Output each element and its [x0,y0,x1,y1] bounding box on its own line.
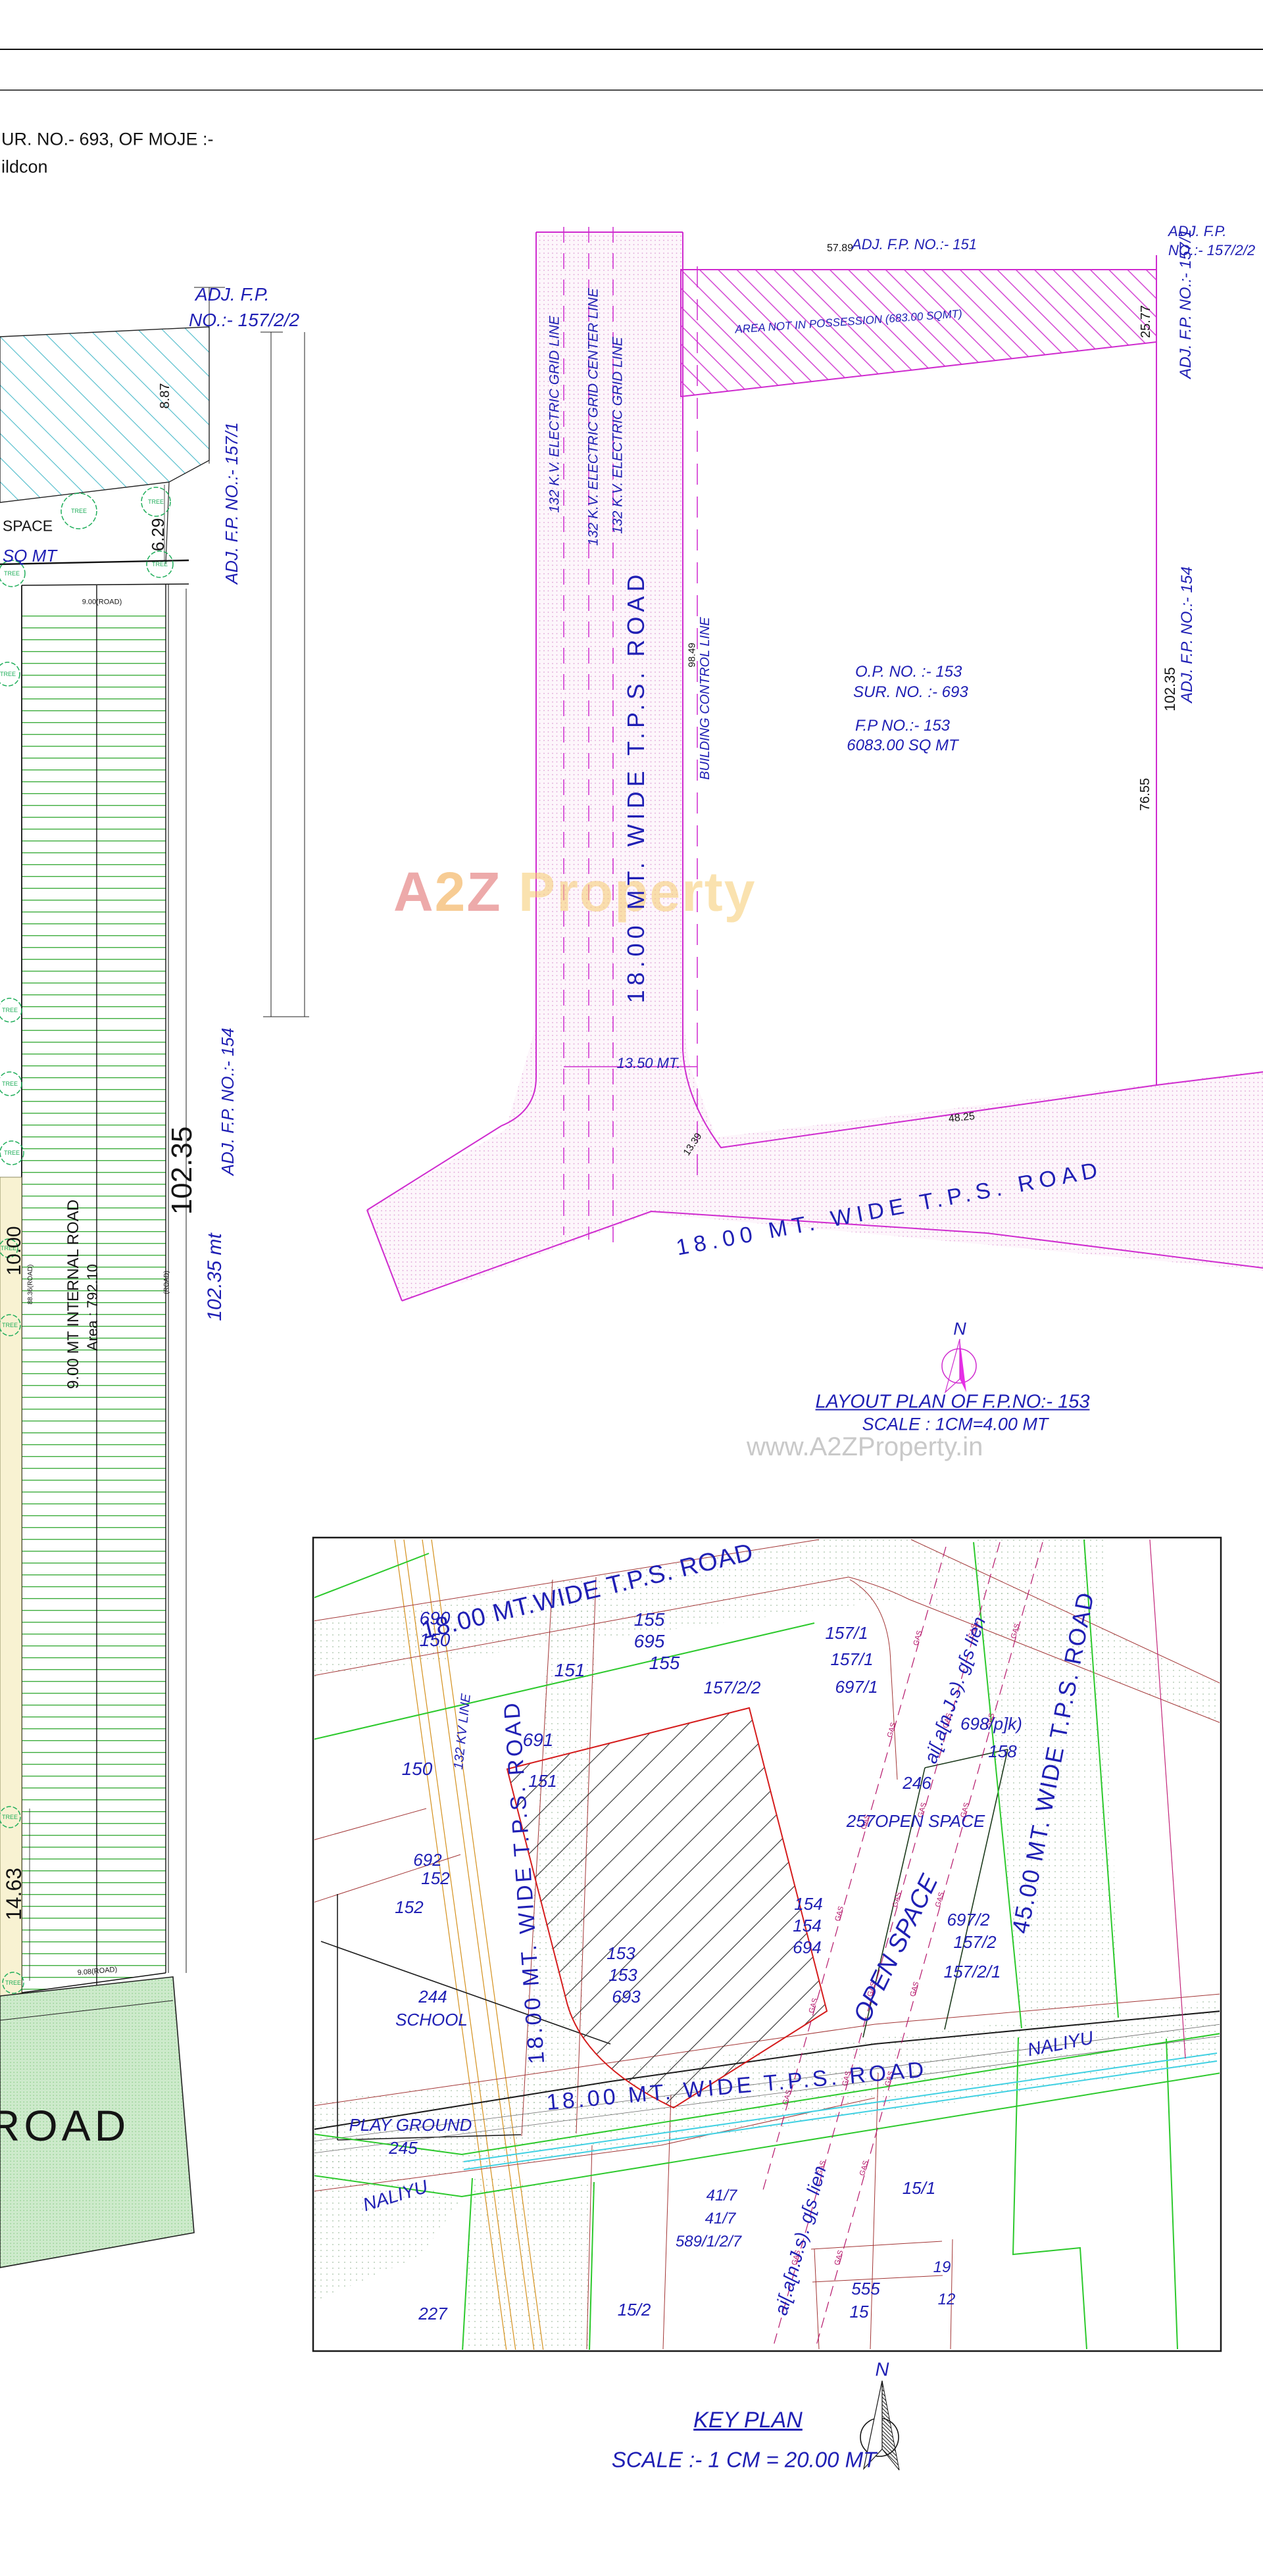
plan-label: Area : 792.10 [86,1264,100,1351]
plan-label: 697/2 [947,1911,989,1928]
plan-label: LAYOUT PLAN OF F.P.NO:- 153 [816,1393,1090,1412]
main-plan-road [366,227,1263,1301]
a2z-watermark: A2Z Property [393,860,756,924]
plan-drawing: GASGASGASGASGASGASGASGASGASGASGASGASGASG… [0,0,1263,2576]
watermark-letter-z: Z [466,861,501,923]
plan-label: 152 [421,1870,449,1887]
tree-label: TREE [4,570,20,577]
plan-label: 155 [649,1654,680,1672]
tree-label: TREE [152,561,168,568]
plan-label: ADJ. F.P. NO.:- 154 [1179,566,1195,702]
plan-label: 41/7 [705,2211,736,2227]
tree-label: TREE [2,1814,18,1820]
plan-label: 151 [528,1772,557,1789]
tree-label: TREE [2,1007,18,1013]
plan-label: SPACE [3,519,53,534]
plan-label: N [953,1321,966,1338]
plan-label: 153 [608,1966,637,1983]
plan-label: (ROAD) [164,1271,170,1294]
plan-label: 15/1 [903,2179,936,2197]
tree-label: TREE [71,508,87,514]
plan-label: PLAY GROUND [349,2116,472,2133]
plan-label: 153 [607,1945,635,1962]
plan-label: ROAD [0,2104,130,2147]
tree-label: TREE [148,498,164,505]
plan-label: 157/2/2 [704,1679,761,1696]
tree-label: TREE [2,1081,18,1087]
plan-label: 151 [555,1661,585,1680]
plan-label: 132 K.V. ELECTRIC GRID LINE [548,316,562,513]
plan-label: ADJ. F.P. NO.:- 151 [852,237,977,252]
plan-label: 154 [793,1917,821,1934]
plan-label: 245 [389,2139,417,2156]
tree-label: TREE [2,1322,18,1328]
plan-label: 227 [418,2305,447,2322]
plan-label: 6.29 [149,518,166,552]
left-plan-shapes [0,287,309,2268]
plan-label: 152 [395,1899,423,1916]
plan-label: 98.49 [687,643,697,668]
plan-label: 154 [794,1895,822,1912]
plan-label: SUR. NO. :- 693 [853,685,968,700]
plan-label: 13.50 MT. [616,1056,680,1071]
plan-label: 244 [418,1988,447,2005]
plan-label: 157/1 [830,1651,873,1668]
tree-label: TREE [5,1980,21,1986]
plan-label: 694 [793,1939,821,1956]
url-watermark: www.A2ZProperty.in [747,1432,983,1462]
plan-label: 8.87 [159,383,172,409]
plan-label: 697/1 [835,1678,878,1695]
plan-label: 158 [988,1743,1016,1760]
plan-label: 102.35 [168,1127,197,1215]
plan-label: 157/1 [825,1624,868,1641]
plan-label: 76.55 [1139,778,1152,811]
plan-label: 6083.00 SQ MT [847,738,958,754]
tree-label: TREE [0,671,16,677]
plan-label: 692 [413,1851,441,1868]
plan-label: SCALE :- 1 CM = 20.00 MT [612,2449,877,2471]
plan-label: 150 [402,1760,433,1778]
plan-label: 25.77 [1139,305,1152,338]
plan-label: 9.00 MT INTERNAL ROAD [66,1200,82,1389]
plan-label: SCHOOL [395,2011,468,2028]
plan-label: N [876,2361,889,2380]
plan-label: 257OPEN SPACE [847,1812,985,1830]
plan-label: 157/2 [953,1933,996,1951]
plan-label: 695 [634,1632,665,1651]
watermark-letter-2: 2 [435,861,467,923]
plan-label: 41/7 [706,2188,737,2204]
plan-label: KEY PLAN [693,2409,803,2431]
plan-label: ADJ. F.P. [195,285,270,304]
plan-label: SCALE : 1CM=4.00 MT [862,1416,1049,1434]
plan-label: 9.00(ROAD) [82,599,122,606]
tree-label: TREE [4,1150,20,1156]
plan-label: SQ MT [3,547,57,564]
plan-label: 589/1/2/7 [676,2234,741,2250]
north-arrow-layout [942,1339,976,1392]
plan-label: BUILDING CONTROL LINE [699,617,712,779]
plan-label: UR. NO.- 693, OF MOJE :- [1,131,214,149]
plan-label: 246 [903,1774,931,1791]
plan-label: 155 [634,1611,665,1629]
plan-label: ADJ. F.P. NO.:- 157/1 [223,422,240,584]
plan-label: ADJ. F.P. NO.:- 157/1 [1178,229,1194,378]
plan-label: 10.00 [5,1226,24,1275]
plan-label: 14.63 [3,1868,24,1920]
plan-label: 555 [851,2280,879,2297]
plan-label: ildcon [1,158,48,176]
plan-label: 102.35 mt [205,1233,225,1321]
plan-label: 88.36(ROAD) [28,1265,34,1305]
plan-label: F.P NO.:- 153 [855,718,950,734]
plan-label: 102.35 [1163,667,1177,711]
plan-label: O.P. NO. :- 153 [855,664,962,680]
plan-label: ADJ. F.P. NO.:- 154 [219,1028,236,1175]
plan-label: 693 [612,1988,640,2005]
plan-label: 12 [938,2292,956,2308]
plan-label: 698/p]k) [960,1715,1022,1732]
plan-label: 132 K.V. ELECTRIC GRID CENTER LINE [587,288,601,546]
header-rules [0,49,1263,90]
plan-label: 57.89 [827,243,853,254]
plan-label: 132 K.V. ELECTRIC GRID LINE [611,337,625,534]
watermark-letter-a: A [393,861,435,923]
plan-label: 157/2/1 [944,1963,1001,1980]
plan-label: 15/2 [618,2301,651,2318]
layout-plan-sheet: GASGASGASGASGASGASGASGASGASGASGASGASGASG… [0,0,1263,2576]
plan-label: 15 [850,2303,869,2320]
plan-label: 18.00 MT. WIDE T.P.S. ROAD [624,570,648,1004]
plan-label: NO.:- 157/2/2 [189,311,299,329]
plan-label: 19 [933,2260,951,2275]
